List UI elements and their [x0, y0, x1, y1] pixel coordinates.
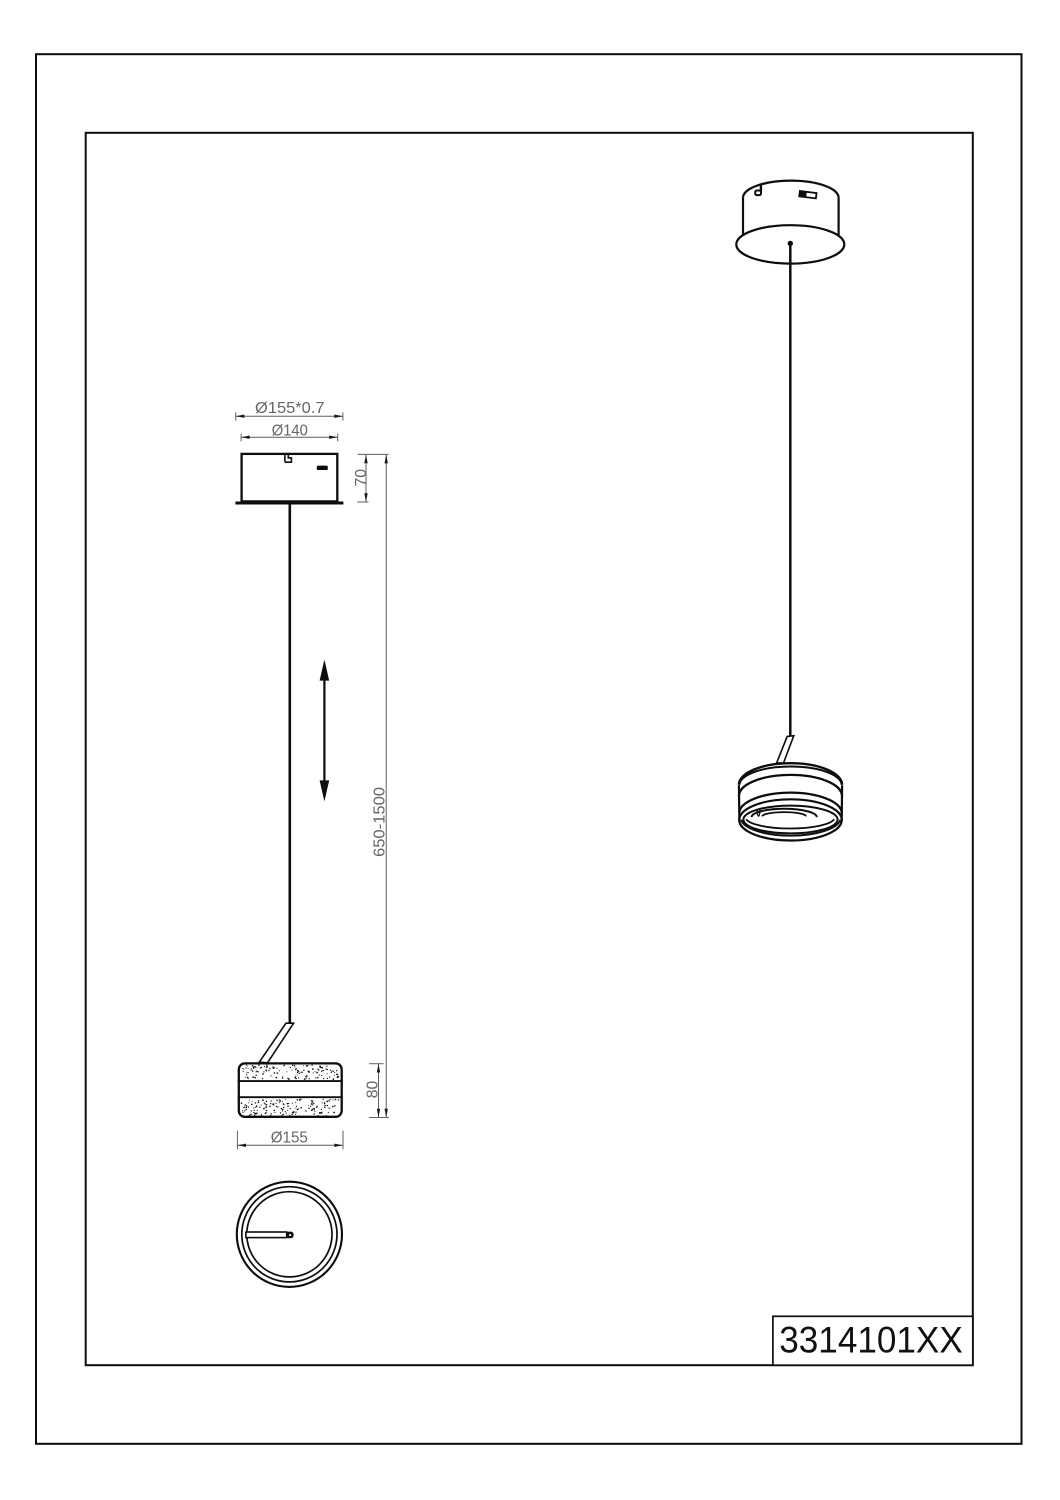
svg-text:70: 70 — [353, 469, 370, 487]
svg-text:3314101XX: 3314101XX — [779, 1319, 963, 1360]
svg-text:650-1500: 650-1500 — [372, 787, 389, 857]
svg-text:Ø140: Ø140 — [272, 422, 308, 439]
svg-text:Ø155*0.7: Ø155*0.7 — [255, 400, 325, 417]
svg-text:Ø155: Ø155 — [271, 1129, 308, 1146]
svg-text:80: 80 — [364, 1081, 381, 1099]
